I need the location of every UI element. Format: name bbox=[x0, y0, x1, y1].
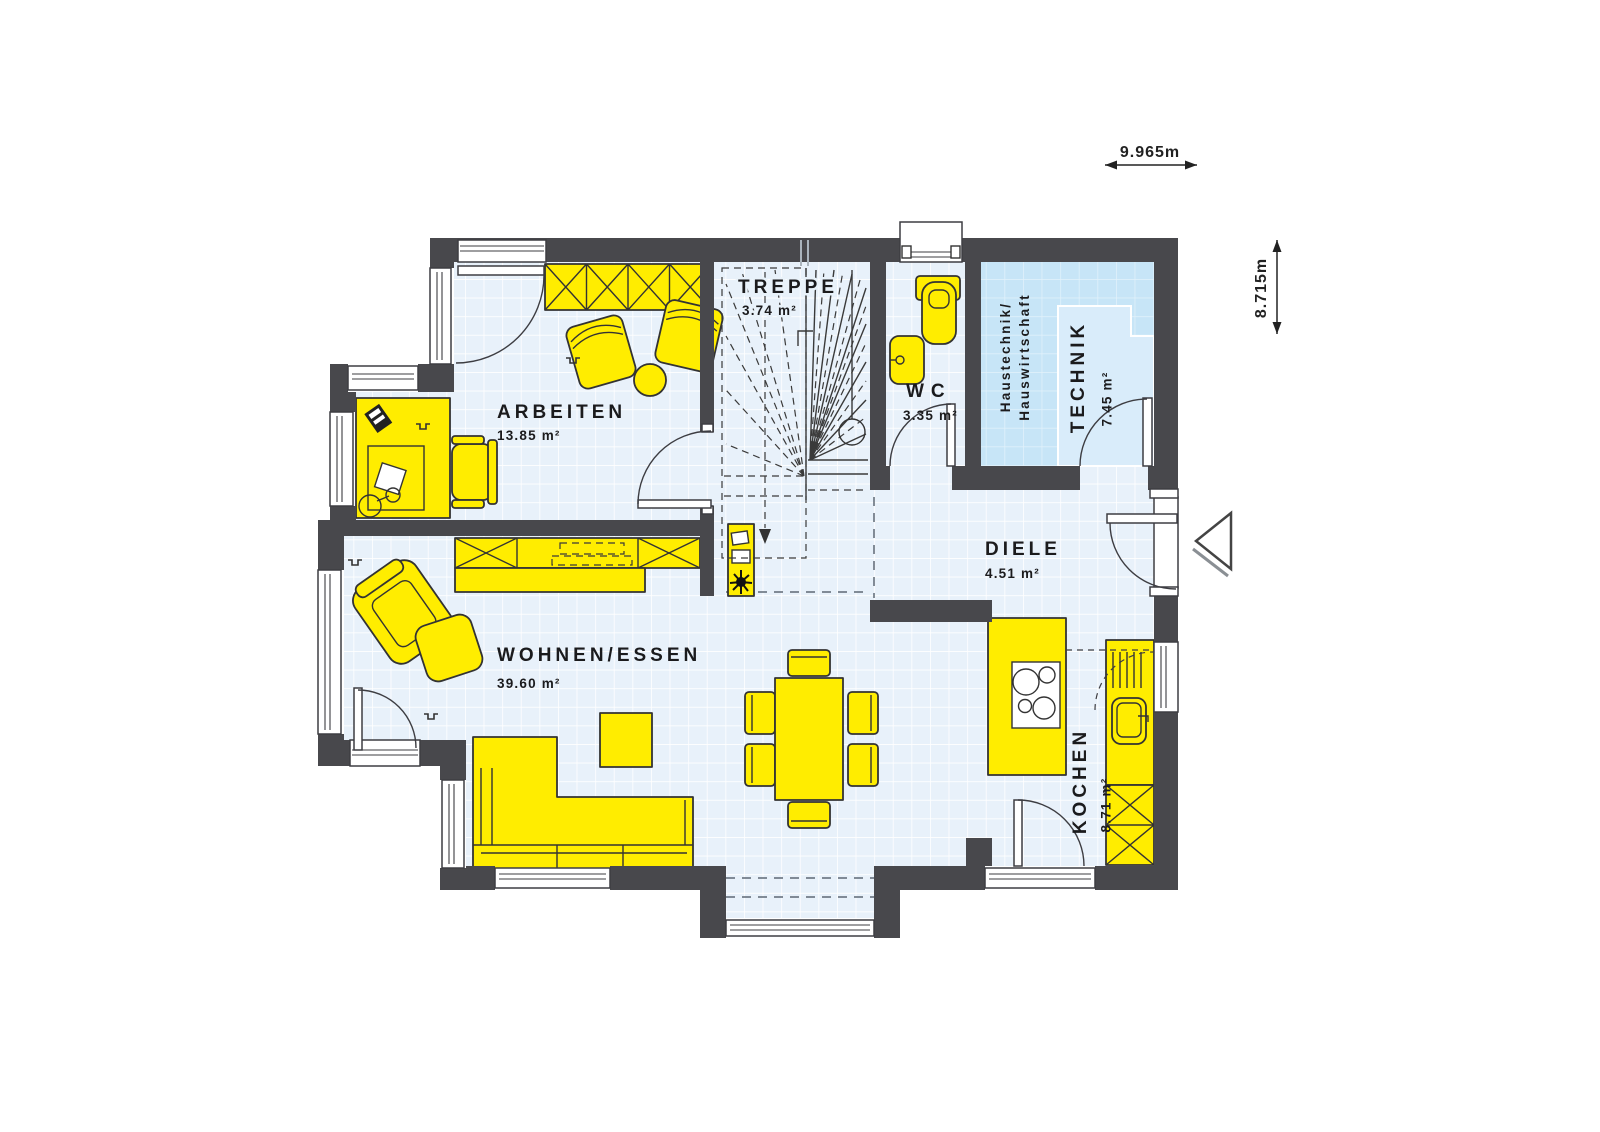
window-kitchen-east bbox=[1154, 642, 1178, 712]
window-nook-north bbox=[348, 366, 418, 390]
room-label-technik: TECHNIK bbox=[1068, 321, 1089, 433]
desk bbox=[356, 398, 450, 518]
room-label-wc: WC bbox=[906, 381, 952, 402]
room-area-technik: 7.45 m² bbox=[1100, 372, 1115, 427]
entrance-arrow-icon bbox=[1193, 513, 1231, 576]
window-southwest bbox=[442, 780, 464, 868]
room-area-treppe: 3.74 m² bbox=[742, 303, 797, 318]
kitchen-counter bbox=[1106, 640, 1154, 785]
room-label-kochen: KOCHEN bbox=[1070, 728, 1091, 834]
window-south-living bbox=[495, 868, 610, 888]
room-label-diele: DIELE bbox=[985, 539, 1061, 560]
room-label-wohnen-essen: WOHNEN/ESSEN bbox=[497, 645, 701, 666]
room-label-treppe: TREPPE bbox=[738, 277, 838, 298]
window-wohnen-west bbox=[318, 570, 341, 734]
window-south-kitchen bbox=[985, 868, 1095, 888]
room-area-arbeiten: 13.85 m² bbox=[497, 428, 561, 443]
technik-sublabel-1: Haustechnik/ bbox=[998, 302, 1013, 412]
svg-text:9.965m: 9.965m bbox=[1120, 144, 1180, 161]
kitchen-island bbox=[988, 618, 1066, 775]
toilet bbox=[916, 276, 960, 344]
svg-text:8.715m: 8.715m bbox=[1253, 258, 1270, 318]
window-wc-north bbox=[900, 222, 962, 262]
room-area-wohnen-essen: 39.60 m² bbox=[497, 676, 561, 691]
dimension-width: 9.965m bbox=[1105, 144, 1197, 170]
office-chair bbox=[452, 436, 497, 508]
dimension-height: 8.715m bbox=[1253, 240, 1281, 334]
wash-basin bbox=[890, 336, 924, 384]
window-arbeiten-west bbox=[430, 268, 451, 364]
window-desk-west bbox=[330, 412, 353, 506]
room-area-wc: 3.35 m² bbox=[903, 408, 958, 423]
window-bay bbox=[726, 920, 874, 936]
side-table bbox=[634, 364, 666, 396]
floor-plan: ARBEITEN 13.85 m² TREPPE 3.74 m² WC 3.35… bbox=[0, 0, 1600, 1132]
room-label-arbeiten: ARBEITEN bbox=[497, 402, 626, 423]
room-area-kochen: 8.71 m² bbox=[1099, 778, 1114, 833]
room-area-diele: 4.51 m² bbox=[985, 566, 1040, 581]
technik-sublabel-2: Hauswirtschaft bbox=[1017, 293, 1032, 421]
hall-shelf bbox=[728, 524, 754, 596]
coffee-table bbox=[600, 713, 652, 767]
